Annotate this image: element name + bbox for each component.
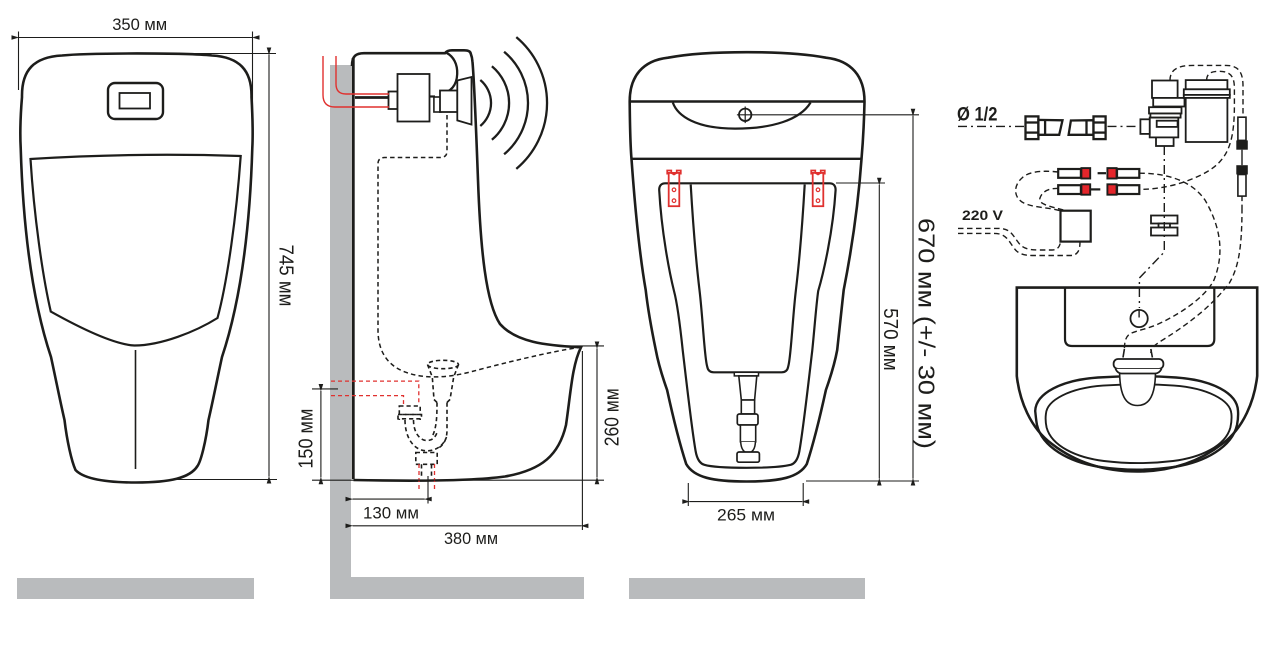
- svg-text:350 мм: 350 мм: [112, 15, 167, 34]
- svg-text:260 мм: 260 мм: [602, 388, 624, 446]
- svg-text:265 мм: 265 мм: [717, 506, 775, 525]
- svg-text:130 мм: 130 мм: [363, 503, 419, 522]
- svg-text:570 мм: 570 мм: [879, 308, 901, 371]
- svg-text:220 V: 220 V: [962, 207, 1004, 223]
- svg-text:745 мм: 745 мм: [274, 245, 296, 307]
- svg-text:380 мм: 380 мм: [444, 529, 498, 548]
- svg-text:Ø 1/2: Ø 1/2: [957, 104, 998, 125]
- svg-text:670 мм (+/- 30 мм): 670 мм (+/- 30 мм): [914, 218, 940, 449]
- svg-text:150 мм: 150 мм: [295, 409, 317, 469]
